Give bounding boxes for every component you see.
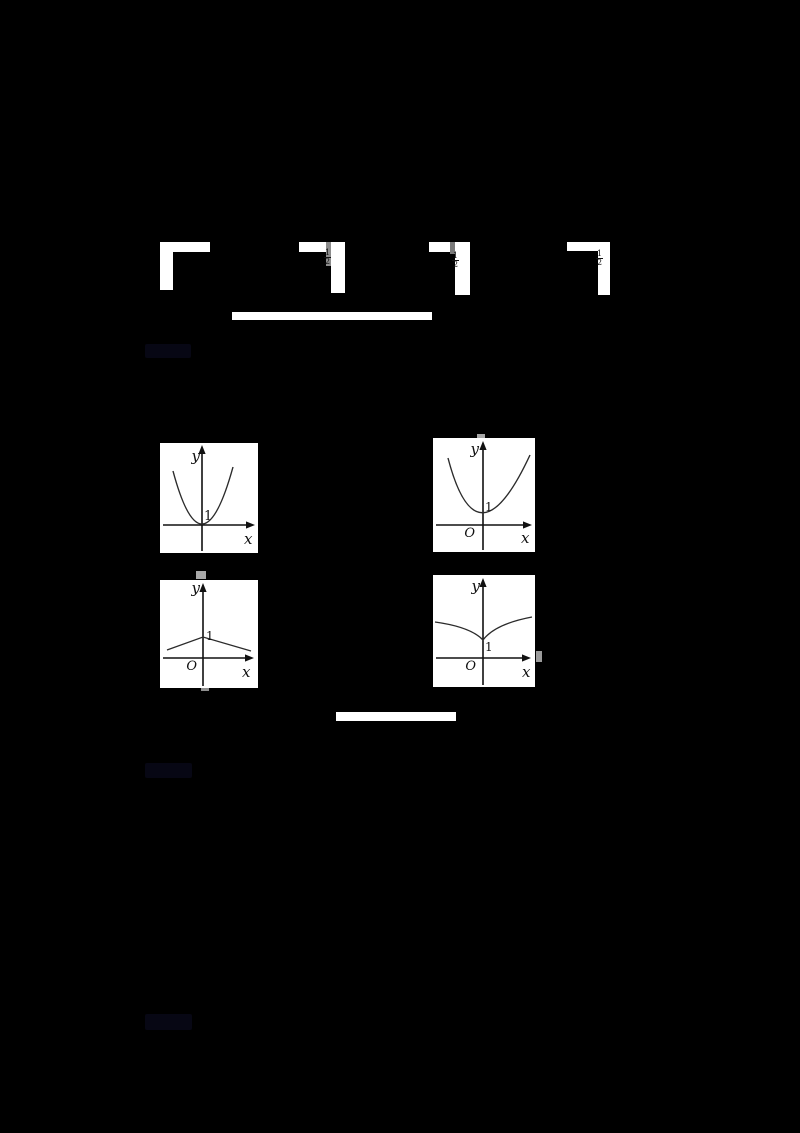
graph-d-background: [433, 575, 535, 687]
value-label-1: 1: [204, 509, 212, 524]
origin-label: O: [465, 659, 476, 674]
value-label-1: 1: [206, 629, 214, 643]
origin-label: O: [464, 526, 475, 541]
fraction-numerator: 1: [325, 249, 330, 257]
fraction-denominator: 2: [596, 258, 603, 267]
y-axis-label: y: [470, 440, 480, 458]
value-label-1: 1: [485, 640, 493, 654]
x-axis-label: x: [244, 530, 253, 548]
divider-bar-1: [232, 312, 432, 320]
formula-fragment-1-left-bar: [160, 242, 173, 290]
fraction-exponent-3: 1 2: [449, 252, 462, 269]
redacted-text-blob-3: [145, 1014, 192, 1030]
y-axis-label: y: [191, 580, 201, 597]
graph-d: 1 O y x: [433, 575, 535, 687]
fraction-denominator: 2: [324, 257, 331, 266]
graph-b-background: [433, 438, 535, 552]
smudge-above-graph-c: [196, 571, 206, 579]
redacted-text-blob-1: [145, 344, 191, 358]
x-axis-label: x: [522, 663, 531, 681]
fraction-numerator: 1: [453, 252, 458, 260]
page-background: 1 2 1 2 1 2 1 y x: [0, 0, 800, 1133]
y-axis-label: y: [471, 577, 481, 595]
fraction-numerator: 1: [597, 250, 602, 258]
fraction-exponent-2: 1 2: [321, 249, 334, 266]
graph-b: 1 O y x: [433, 438, 535, 552]
graph-c: 1 O y x: [160, 580, 258, 688]
origin-label: O: [186, 659, 197, 674]
x-axis-label: x: [242, 663, 251, 681]
fraction-exponent-4: 1 2: [593, 250, 606, 267]
y-axis-label: y: [191, 447, 201, 465]
graph-a: 1 y x: [160, 443, 258, 553]
fraction-denominator: 2: [452, 260, 459, 269]
x-axis-label: x: [521, 529, 530, 547]
redacted-text-blob-2: [145, 763, 192, 778]
divider-bar-2: [336, 712, 456, 721]
value-label-1: 1: [485, 500, 493, 514]
smudge-right-of-graph-d: [536, 651, 542, 662]
